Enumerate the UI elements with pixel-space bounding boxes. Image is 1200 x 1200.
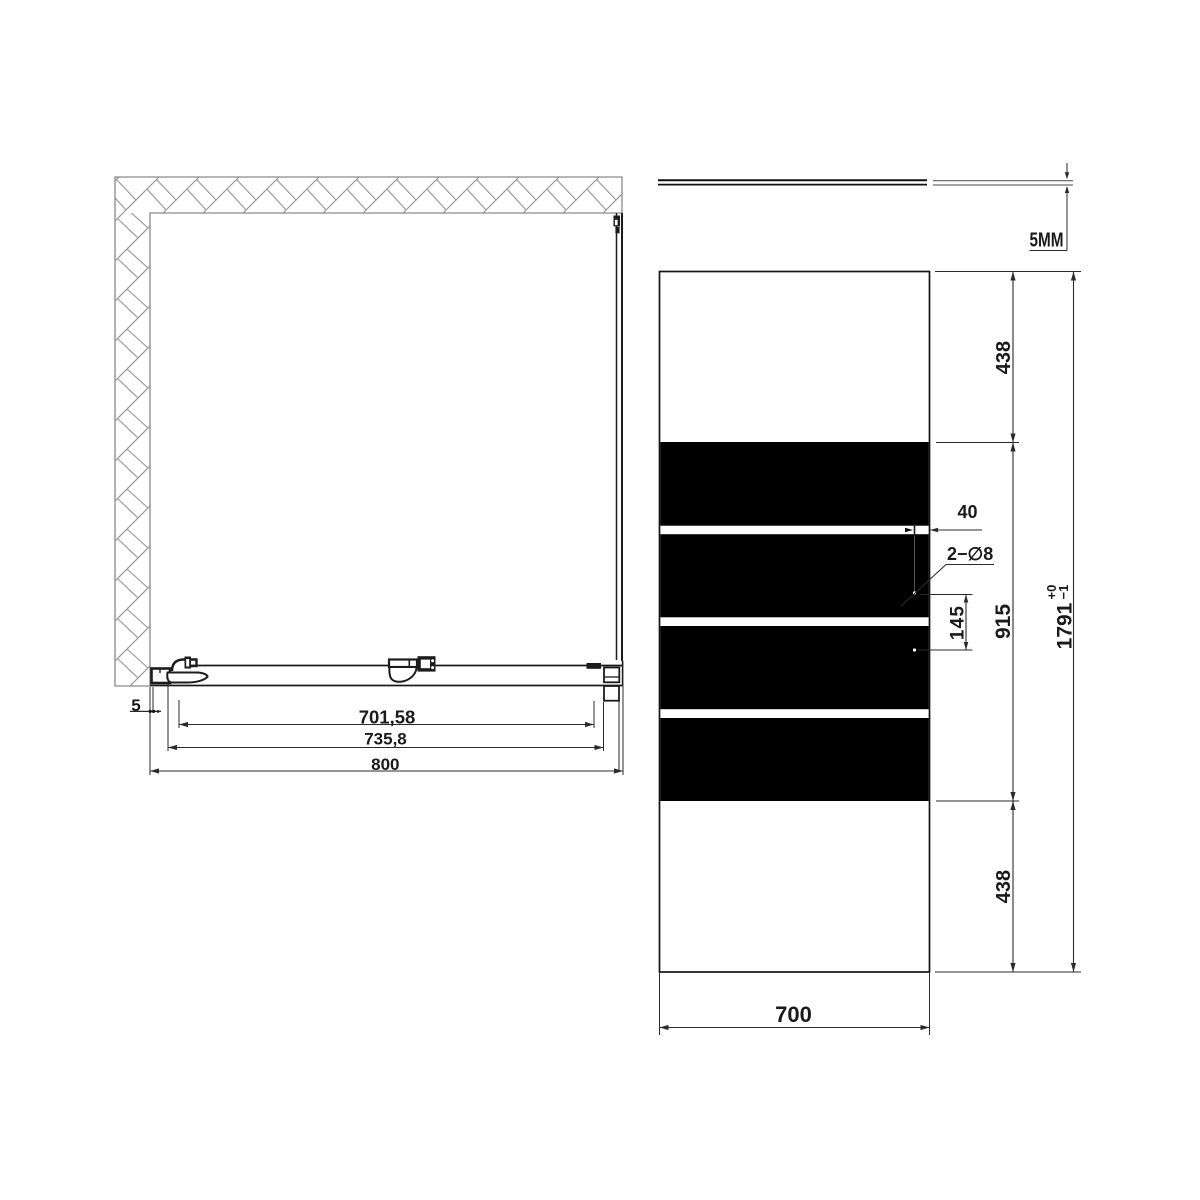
- svg-text:438: 438: [993, 870, 1015, 903]
- svg-text:145: 145: [948, 605, 969, 640]
- svg-text:800: 800: [371, 755, 399, 774]
- svg-text:735,8: 735,8: [364, 729, 407, 748]
- svg-text:2−∅8: 2−∅8: [947, 544, 993, 564]
- svg-text:438: 438: [993, 341, 1015, 374]
- svg-text:701,58: 701,58: [359, 707, 416, 728]
- svg-text:5: 5: [131, 696, 140, 715]
- svg-text:1791: 1791: [1054, 602, 1077, 649]
- svg-text:700: 700: [775, 1002, 812, 1027]
- svg-text:5MM: 5MM: [1030, 230, 1064, 252]
- svg-text:915: 915: [992, 604, 1015, 639]
- svg-text:−1: −1: [1056, 585, 1071, 600]
- svg-text:40: 40: [957, 502, 977, 522]
